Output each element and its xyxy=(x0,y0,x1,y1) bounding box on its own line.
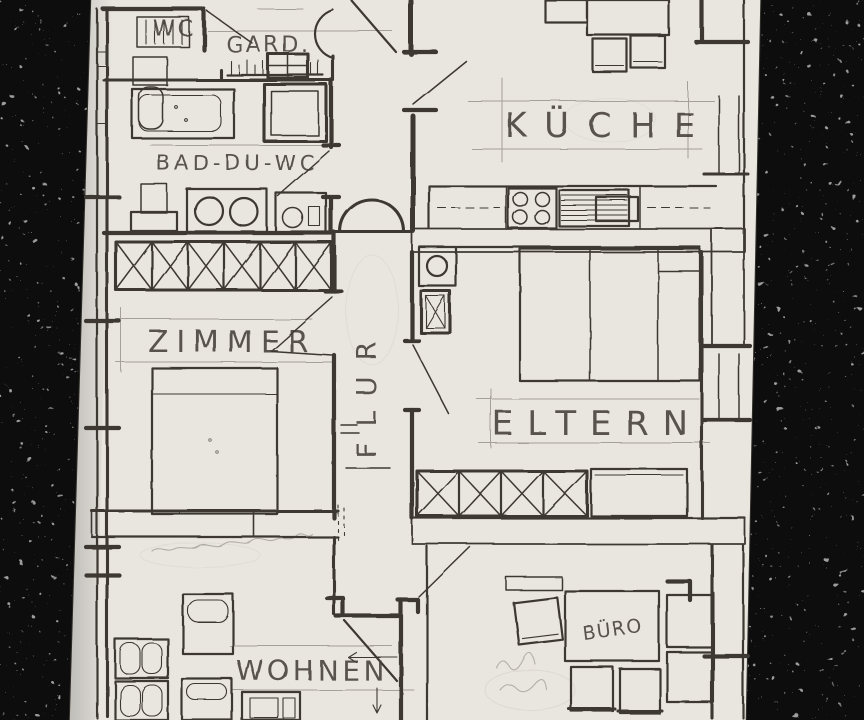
floorplan-scene: WC GARD. xyxy=(0,0,864,720)
photo-of-floorplan: WC GARD. xyxy=(0,0,864,720)
label-wohnen: WOHNEN xyxy=(236,654,386,687)
label-bad: BAD-DU-WC xyxy=(156,151,316,175)
label-wc: WC xyxy=(153,17,195,42)
